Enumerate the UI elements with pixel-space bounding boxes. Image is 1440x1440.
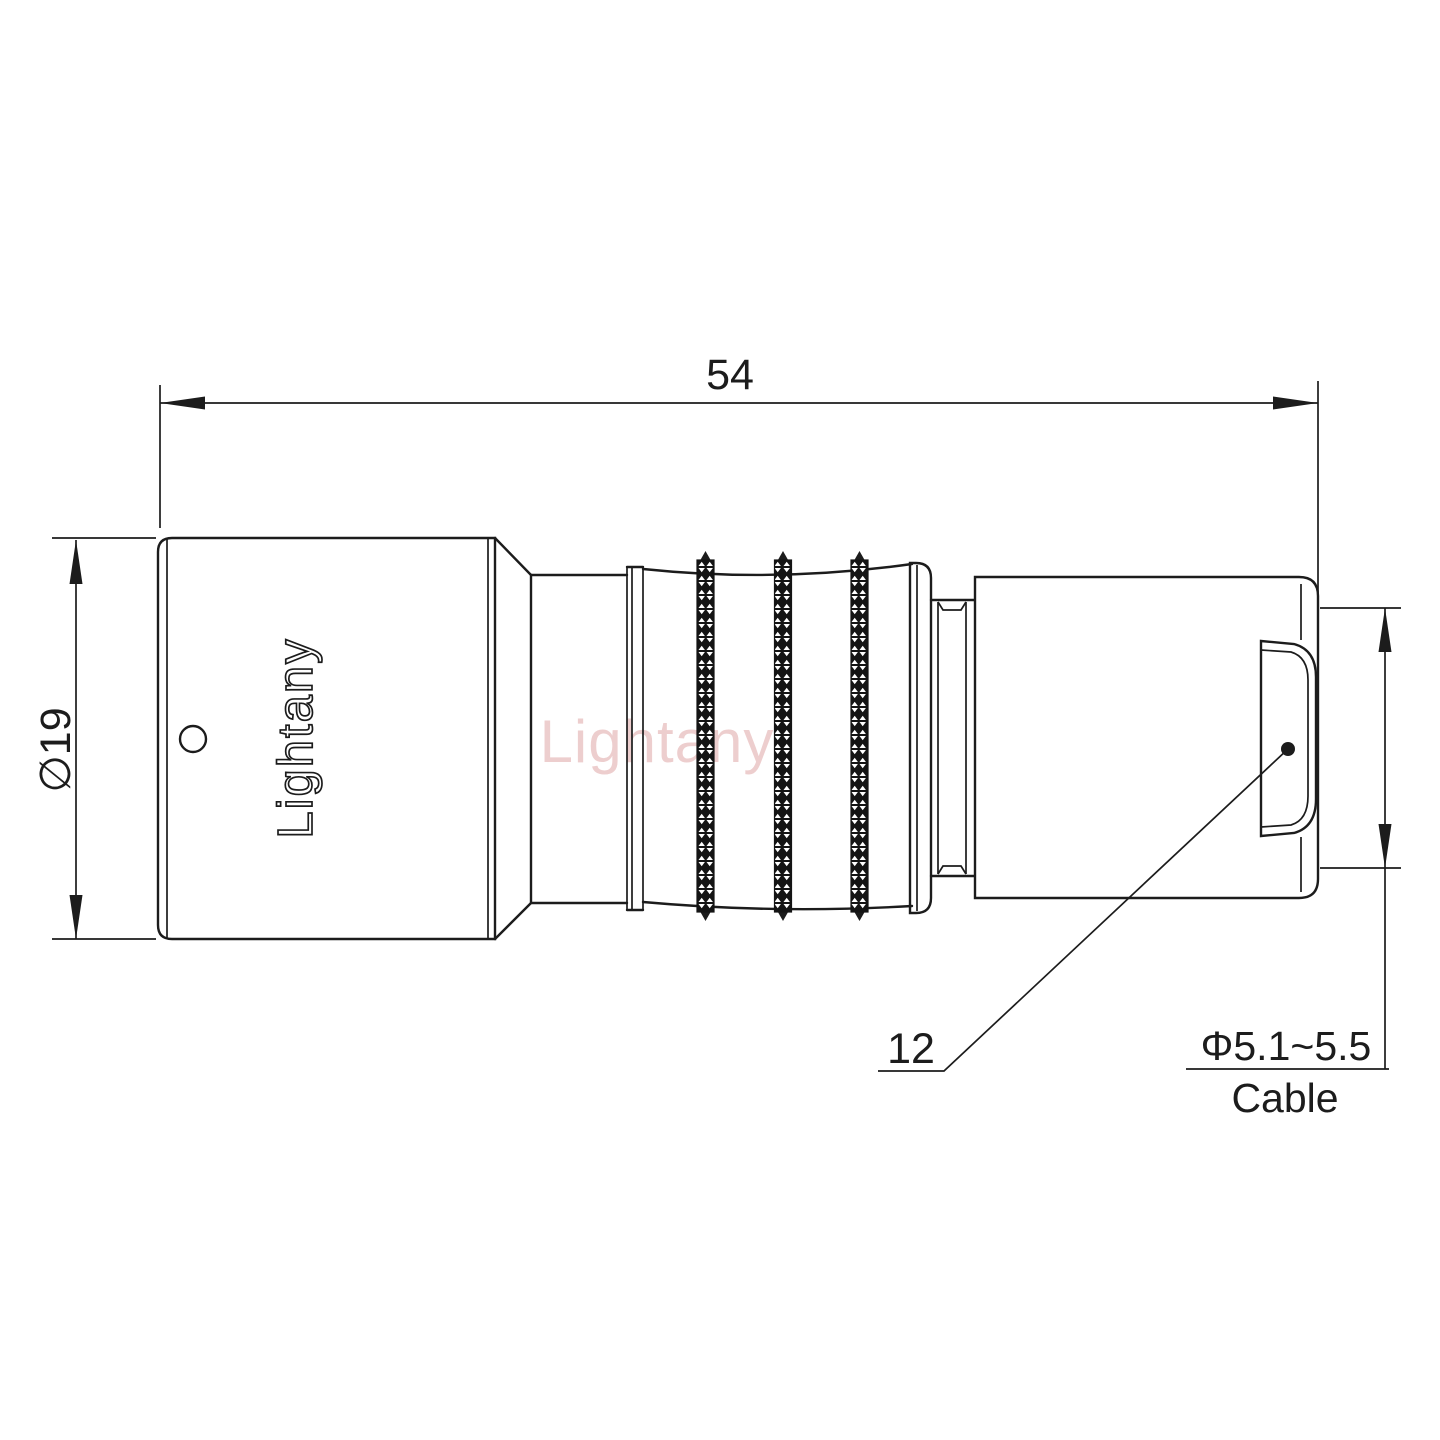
watermark: Lightany [540, 708, 775, 775]
front-body-outline [158, 538, 495, 939]
knurl-band-texture [775, 560, 792, 912]
knurl-end-cap [910, 563, 931, 913]
taper-bottom-line [495, 903, 531, 939]
technical-drawing-canvas: Lightany Lightany [0, 0, 1440, 1440]
knurl-band [775, 551, 792, 921]
body-logo-text: Lightany [269, 637, 323, 838]
arrowhead-left [160, 397, 205, 410]
knurl-band [697, 551, 714, 921]
overall-length-label: 54 [706, 351, 754, 399]
front-diameter-label: ∅19 [32, 707, 80, 792]
cable-bushing-inner-line [1261, 650, 1308, 827]
neck-side-lines [938, 602, 966, 874]
cable-range-label: Φ5.1~5.5 [1201, 1023, 1372, 1069]
watermark-text: Lightany [540, 708, 775, 775]
connector-drawing-svg: Lightany Lightany [0, 0, 1440, 1440]
arrowhead-top [70, 540, 83, 584]
cable-word-label: Cable [1231, 1075, 1338, 1121]
knurl-band-texture [697, 560, 714, 912]
index-hole [180, 726, 206, 752]
rear-body-outline [975, 577, 1318, 898]
rear-body [975, 577, 1318, 898]
dimension-front-diameter: ∅19 [32, 538, 156, 939]
arrowhead-bottom [70, 895, 83, 939]
arrowhead-top [1379, 608, 1392, 652]
neck-chamfer-lines [938, 602, 966, 874]
rear-leader-label: 12 [887, 1025, 935, 1073]
dimension-overall-length: 54 [160, 351, 1318, 596]
neck-groove [931, 600, 974, 876]
taper-top-line [495, 538, 531, 575]
dimension-cable: Φ5.1~5.5 Cable [1186, 608, 1401, 1121]
front-body: Lightany [158, 538, 495, 939]
knurl-band [851, 551, 868, 921]
knurl-band-texture [851, 560, 868, 912]
arrowhead-bottom [1379, 824, 1392, 868]
arrowhead-right [1273, 397, 1318, 410]
